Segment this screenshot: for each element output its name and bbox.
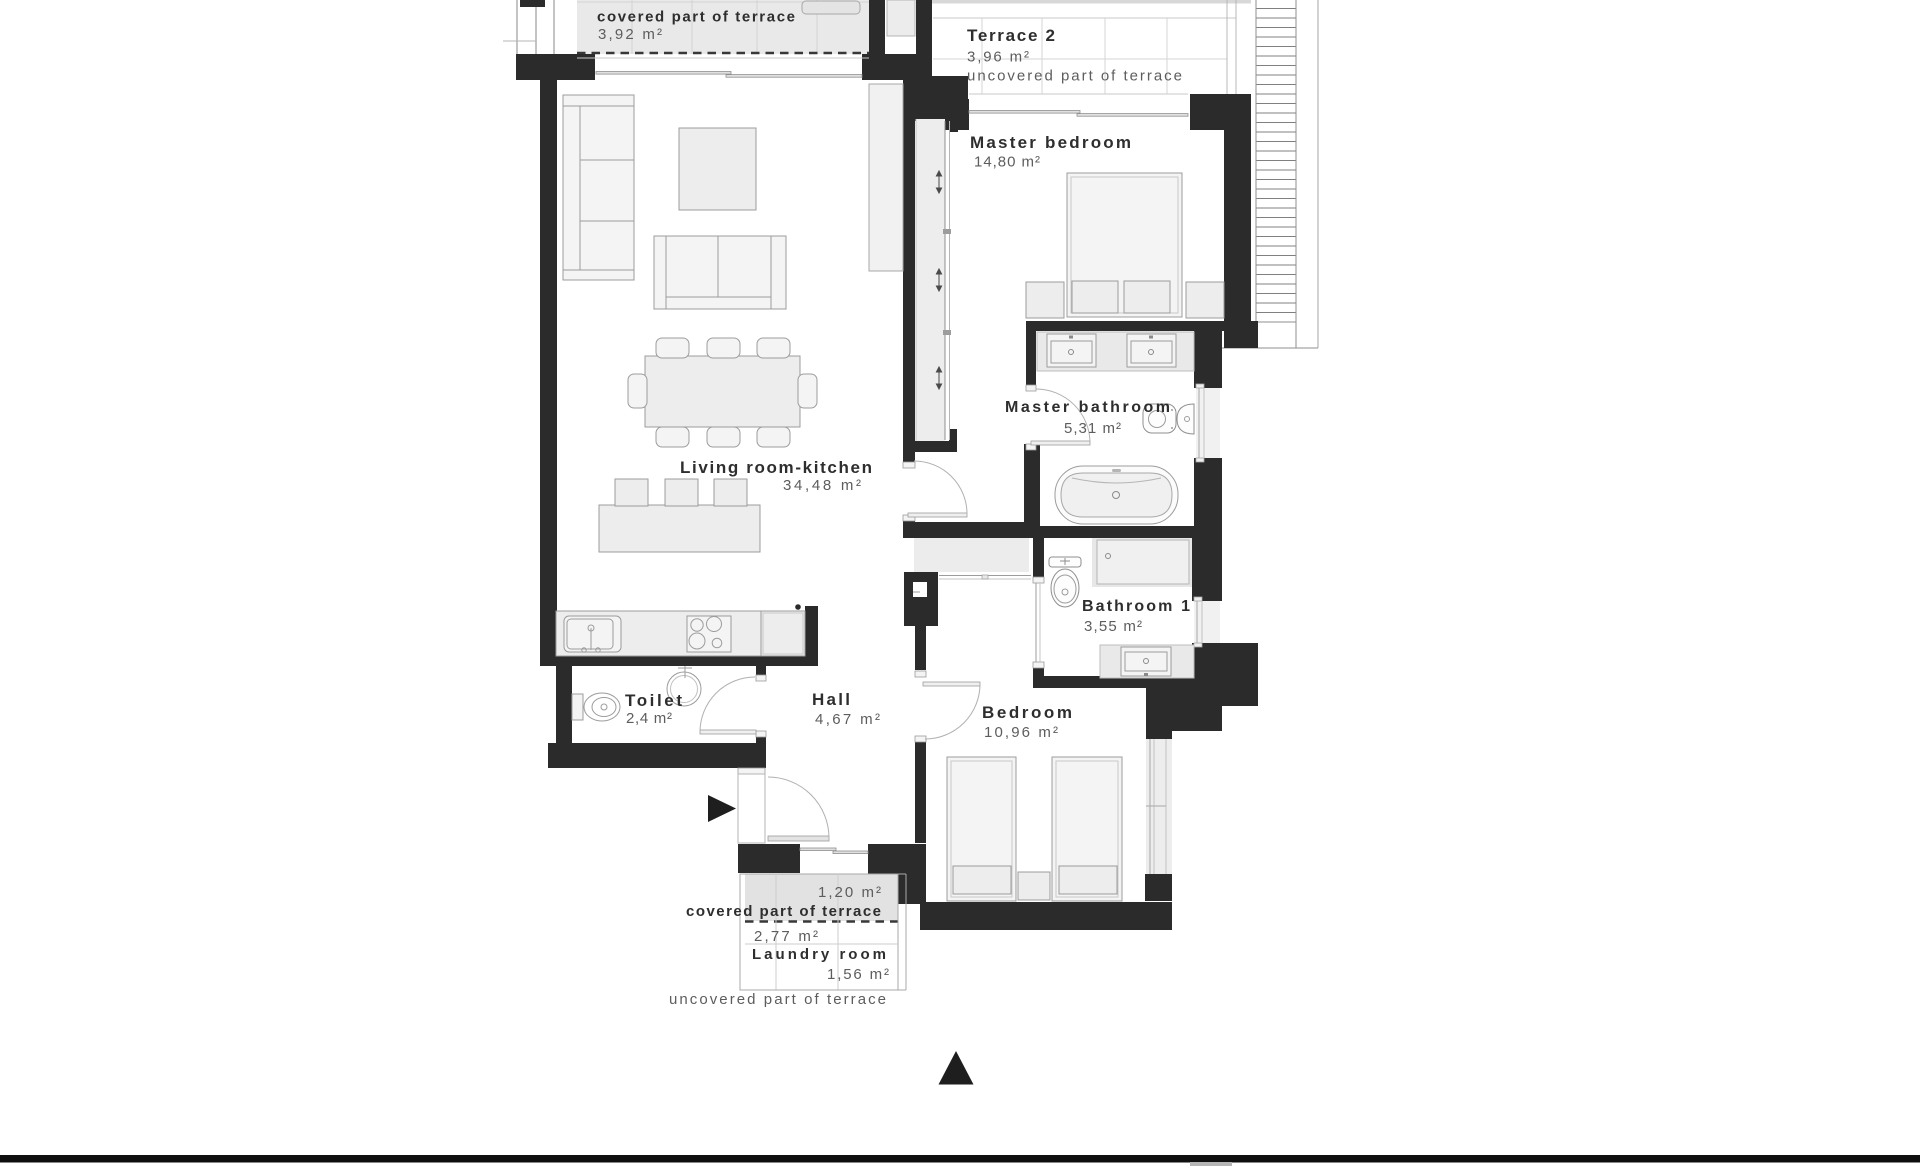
svg-text:3,96 m²: 3,96 m² <box>967 49 1029 66</box>
svg-text:2,4 m²: 2,4 m² <box>626 710 672 727</box>
svg-text:1,20 m²: 1,20 m² <box>818 884 881 901</box>
svg-text:34,48 m²: 34,48 m² <box>783 477 861 494</box>
svg-text:Hall: Hall <box>812 690 850 709</box>
svg-text:Terrace 2: Terrace 2 <box>967 26 1055 45</box>
svg-text:14,80 m²: 14,80 m² <box>974 154 1040 171</box>
svg-text:Toilet: Toilet <box>625 691 682 710</box>
svg-text:2,77 m²: 2,77 m² <box>754 928 818 945</box>
svg-text:10,96 m²: 10,96 m² <box>984 724 1058 741</box>
svg-text:uncovered part of terrace: uncovered part of terrace <box>669 991 886 1008</box>
svg-text:Master bedroom: Master bedroom <box>970 133 1131 152</box>
svg-text:4,67 m²: 4,67 m² <box>815 711 880 728</box>
svg-text:Living room-kitchen: Living room-kitchen <box>680 458 872 477</box>
svg-text:3,55 m²: 3,55 m² <box>1084 618 1142 635</box>
svg-text:5,31 m²: 5,31 m² <box>1064 420 1121 437</box>
svg-text:3,92 m²: 3,92 m² <box>598 26 662 43</box>
svg-text:Bathroom 1: Bathroom 1 <box>1082 598 1190 615</box>
svg-text:uncovered part of terrace: uncovered part of terrace <box>967 68 1182 85</box>
svg-text:1,56 m²: 1,56 m² <box>827 966 889 983</box>
